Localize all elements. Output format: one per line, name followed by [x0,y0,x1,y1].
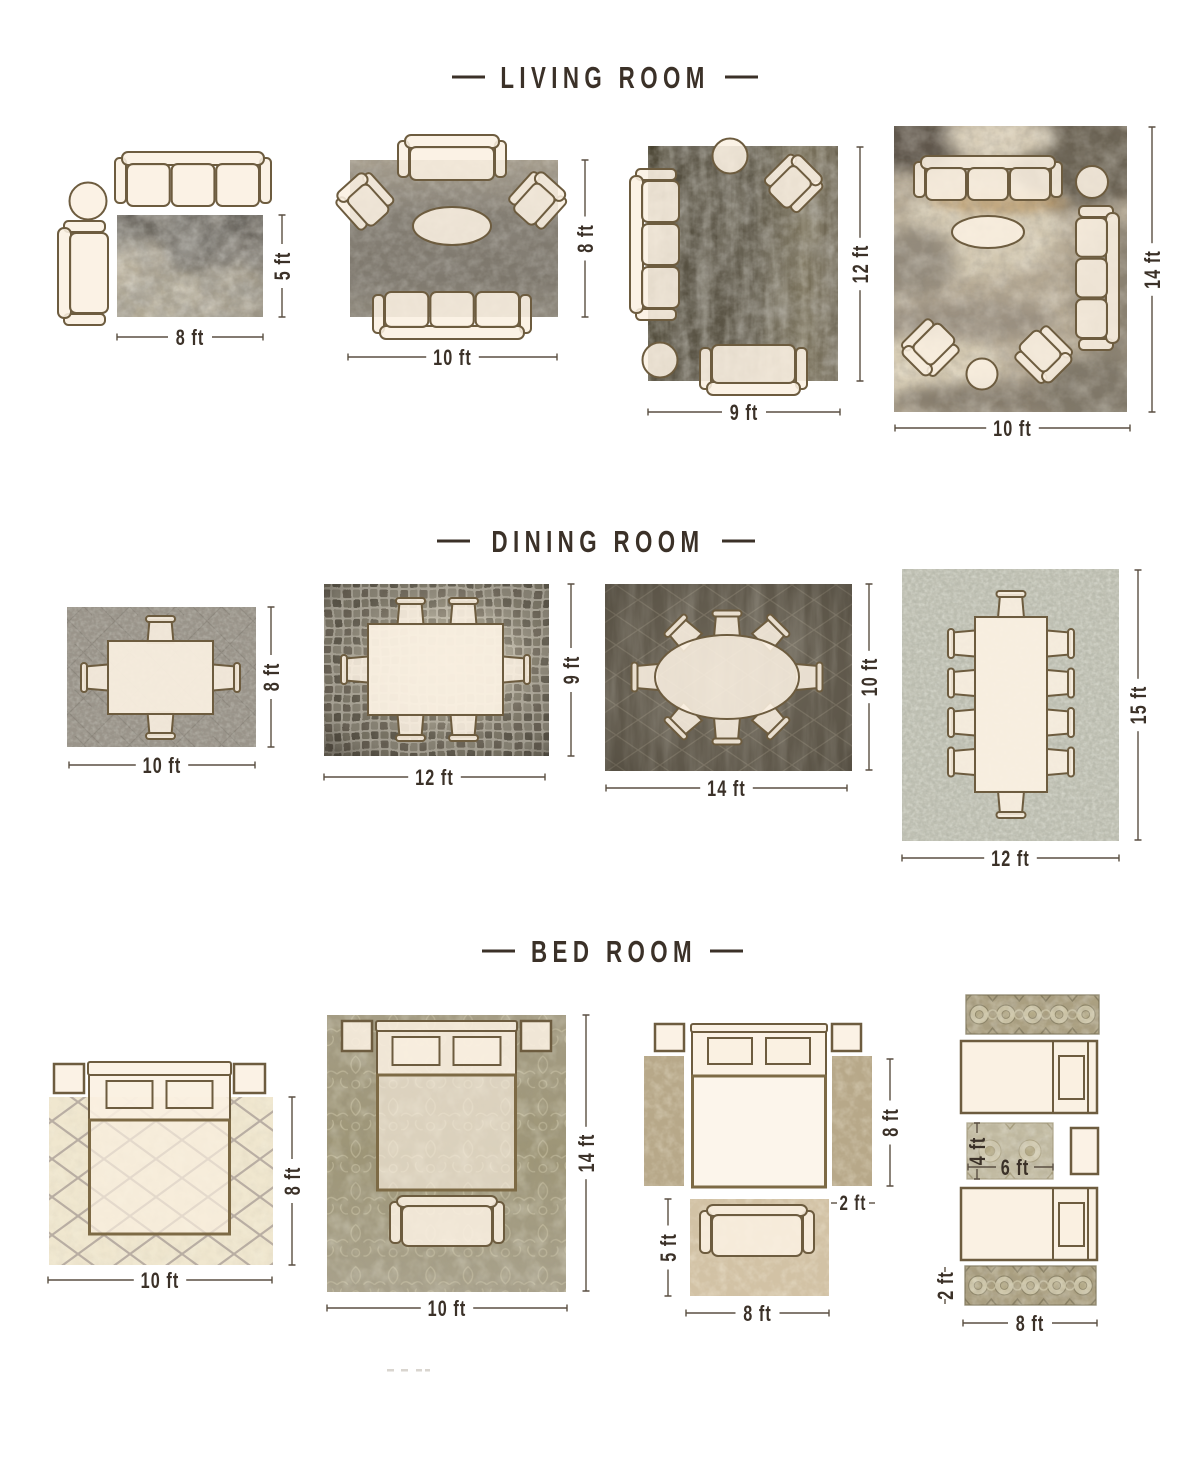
svg-text:8 ft: 8 ft [879,1108,904,1137]
svg-text:9 ft: 9 ft [560,656,585,685]
svg-text:5 ft: 5 ft [657,1233,682,1262]
svg-text:10 ft: 10 ft [141,1269,180,1294]
svg-text:LIVING ROOM: LIVING ROOM [500,60,709,94]
svg-text:8 ft: 8 ft [574,224,599,253]
svg-text:15 ft: 15 ft [1127,686,1152,725]
svg-text:8 ft: 8 ft [260,663,285,692]
svg-text:DINING ROOM: DINING ROOM [491,524,704,558]
svg-text:BED ROOM: BED ROOM [531,934,697,968]
svg-text:8 ft: 8 ft [176,326,205,351]
svg-text:14 ft: 14 ft [707,777,746,802]
svg-text:5 ft: 5 ft [271,252,296,281]
svg-text:2 ft: 2 ft [840,1190,867,1214]
svg-text:12 ft: 12 ft [991,847,1030,872]
svg-text:10 ft: 10 ft [143,754,182,779]
svg-text:10 ft: 10 ft [428,1297,467,1322]
svg-text:12 ft: 12 ft [849,245,874,284]
svg-text:8 ft: 8 ft [743,1302,772,1327]
svg-text:12 ft: 12 ft [415,766,454,791]
svg-text:10 ft: 10 ft [858,658,883,697]
svg-text:9 ft: 9 ft [730,401,759,426]
svg-text:14 ft: 14 ft [1141,250,1166,289]
svg-text:2 ft: 2 ft [934,1271,959,1300]
svg-text:10 ft: 10 ft [993,417,1032,442]
svg-text:4 ft: 4 ft [966,1137,991,1166]
svg-text:6 ft: 6 ft [1001,1155,1030,1180]
svg-text:8 ft: 8 ft [281,1167,306,1196]
svg-text:14 ft: 14 ft [575,1134,600,1173]
svg-text:8 ft: 8 ft [1016,1312,1045,1337]
svg-text:10 ft: 10 ft [433,346,472,371]
